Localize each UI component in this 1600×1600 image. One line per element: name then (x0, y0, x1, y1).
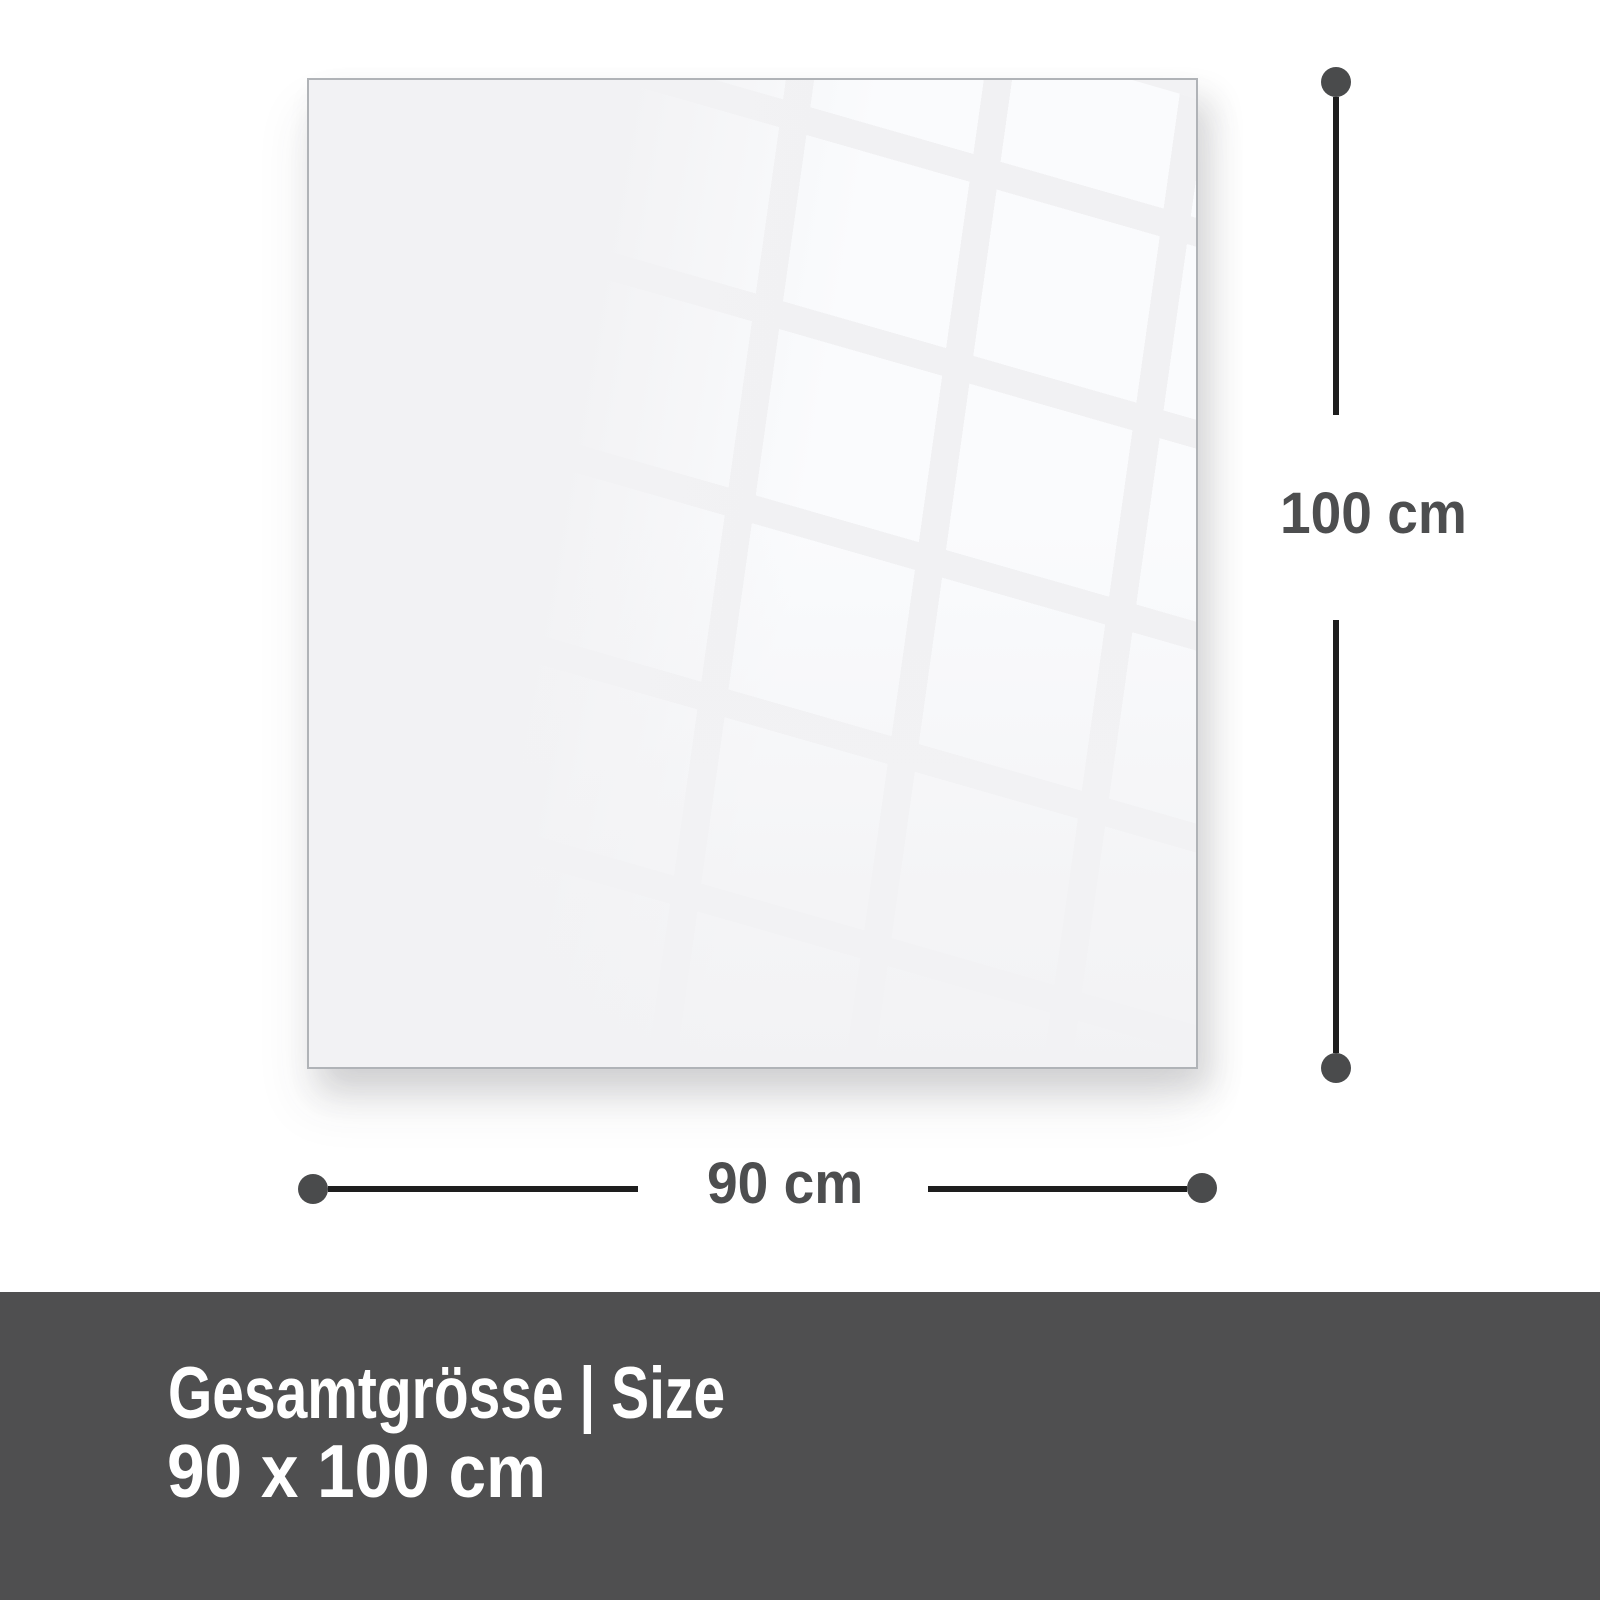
size-footer-value: 90 x 100 cm (167, 1434, 546, 1509)
width-dimension-label: 90 cm (707, 1155, 863, 1213)
size-footer-heading: Gesamtgrösse | Size (168, 1357, 725, 1430)
width-dimension-left-endpoint-dot (298, 1174, 328, 1204)
product-size-diagram: 100 cm 90 cm Gesamtgrösse | Size 90 x 10… (0, 0, 1600, 1600)
glass-reflection-fade (309, 80, 1196, 1067)
size-footer-bar: Gesamtgrösse | Size 90 x 100 cm (0, 1292, 1600, 1600)
height-dimension-bottom-endpoint-dot (1321, 1053, 1351, 1083)
width-dimension-line-left (328, 1186, 638, 1192)
height-dimension-top-endpoint-dot (1321, 67, 1351, 97)
width-dimension-line-right (928, 1186, 1187, 1192)
height-dimension-line-lower (1333, 620, 1339, 1053)
width-dimension-right-endpoint-dot (1187, 1173, 1217, 1203)
height-dimension-label: 100 cm (1280, 485, 1467, 543)
height-dimension-line-upper (1333, 97, 1339, 415)
glass-panel-preview (307, 78, 1198, 1069)
